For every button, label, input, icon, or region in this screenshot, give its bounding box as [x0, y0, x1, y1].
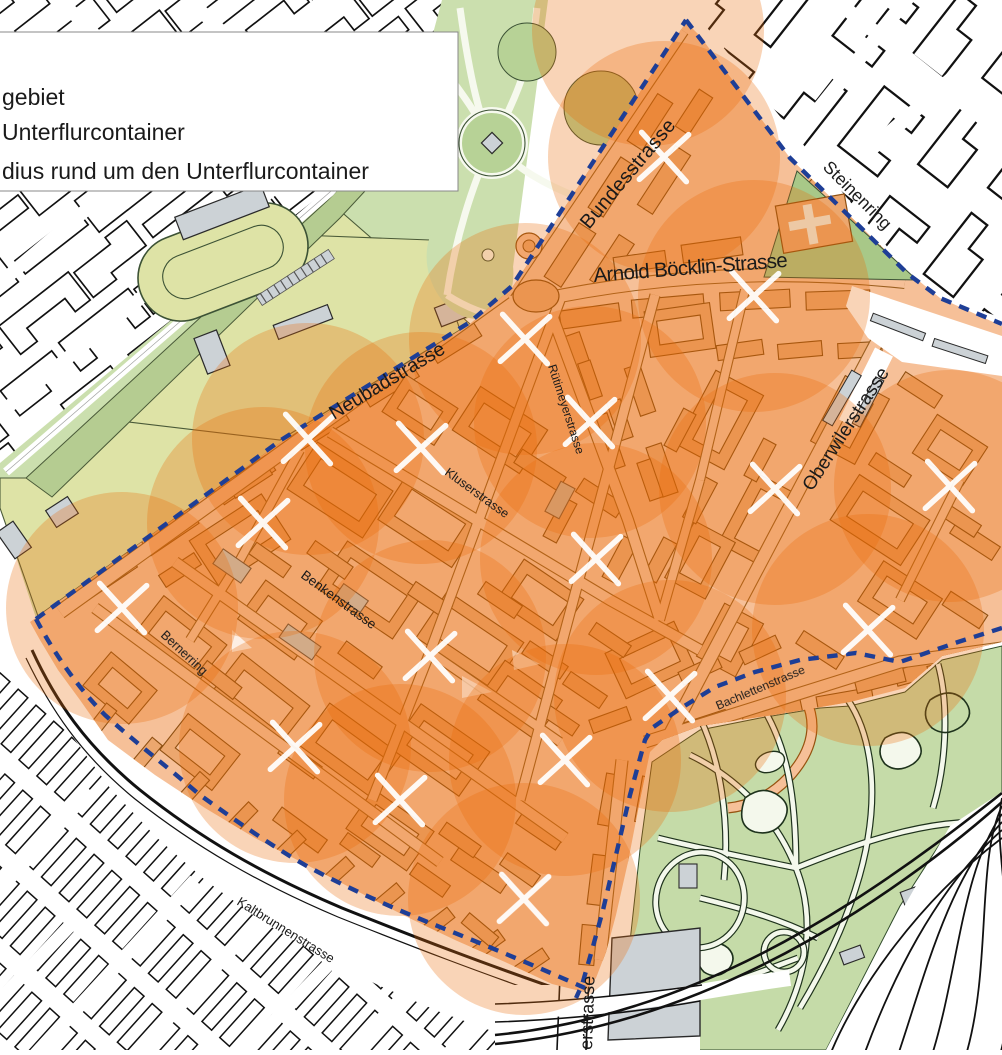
svg-text:gebiet: gebiet — [2, 84, 65, 110]
svg-text:dius rund um den Unterflurcont: dius rund um den Unterflurcontainer — [2, 158, 369, 184]
svg-text:erstrasse: erstrasse — [576, 975, 599, 1050]
svg-text:Unterflurcontainer: Unterflurcontainer — [2, 119, 185, 145]
